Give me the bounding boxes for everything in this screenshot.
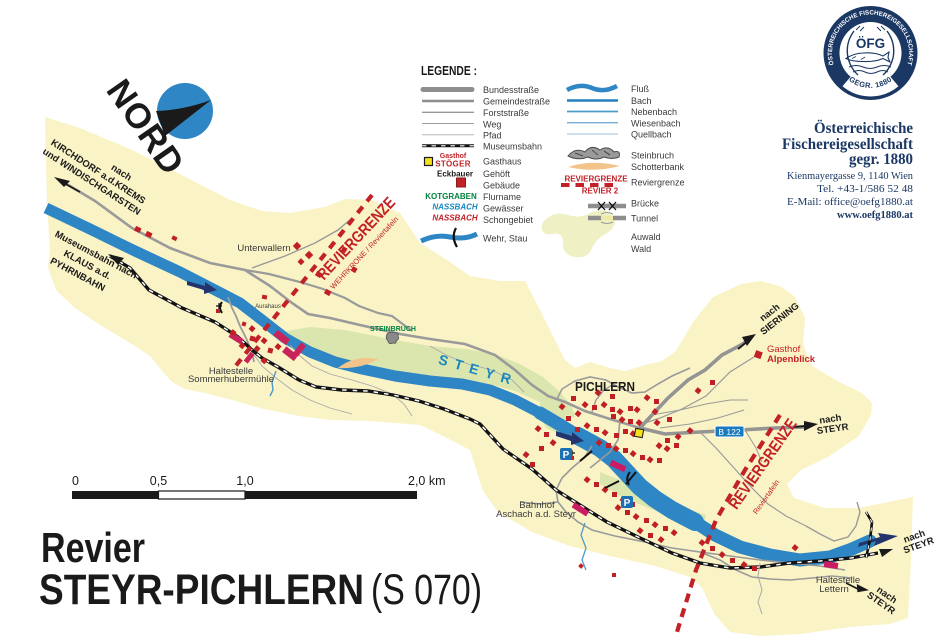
svg-text:STÖGER: STÖGER [435,160,471,169]
svg-text:KOTGRABEN: KOTGRABEN [425,192,477,201]
svg-text:E-Mail: office@oefg1880.at: E-Mail: office@oefg1880.at [787,196,913,208]
svg-text:Schongebiet: Schongebiet [483,215,534,225]
svg-text:Museumsbahn: Museumsbahn [483,142,542,152]
svg-text:Aschach a.d. Steyr: Aschach a.d. Steyr [496,509,576,520]
svg-text:Alpenblick: Alpenblick [767,354,816,365]
svg-text:(S 070): (S 070) [371,566,482,614]
svg-text:Reviergrenze: Reviergrenze [631,178,685,188]
svg-text:P: P [624,498,631,509]
svg-text:Lettern: Lettern [819,584,849,595]
svg-text:Unterwallern: Unterwallern [237,243,290,254]
svg-text:0,5: 0,5 [150,474,167,488]
svg-text:Wehr, Stau: Wehr, Stau [483,234,527,244]
svg-text:STEYR-PICHLERN: STEYR-PICHLERN [39,566,364,614]
svg-text:Tel. +43-1/586 52 48: Tel. +43-1/586 52 48 [817,183,914,195]
svg-text:Brücke: Brücke [631,199,659,209]
svg-text:Steinbruch: Steinbruch [631,151,674,161]
svg-text:Gehöft: Gehöft [483,169,511,179]
svg-text:Tunnel: Tunnel [631,214,658,224]
svg-text:Gasthaus: Gasthaus [483,157,522,167]
svg-text:B 122: B 122 [718,427,740,437]
svg-text:ÖFG: ÖFG [856,36,885,51]
svg-text:STEINBRUCH: STEINBRUCH [370,326,416,333]
svg-text:Gewässer: Gewässer [483,204,524,214]
svg-text:Fluß: Fluß [631,84,650,94]
svg-text:Revier: Revier [41,524,145,571]
svg-text:Wald: Wald [631,244,651,254]
svg-text:PICHLERN: PICHLERN [575,379,635,394]
svg-text:Eckbauer: Eckbauer [437,170,473,179]
svg-text:Österreichische: Österreichische [814,119,913,137]
svg-text:Gebäude: Gebäude [483,181,520,191]
svg-text:NASSBACH: NASSBACH [432,214,478,223]
svg-text:REVIERGRENZE: REVIERGRENZE [564,175,628,184]
svg-text:Kienmayergasse 9, 1140 Wien: Kienmayergasse 9, 1140 Wien [787,170,913,182]
svg-text:Bach: Bach [631,96,652,106]
svg-text:www.oefg1880.at: www.oefg1880.at [837,209,913,221]
svg-text:P: P [563,450,570,461]
svg-text:gegr. 1880: gegr. 1880 [849,151,913,168]
svg-text:Forststraße: Forststraße [483,108,529,118]
svg-text:Wiesenbach: Wiesenbach [631,118,681,128]
svg-text:REVIER 2: REVIER 2 [582,187,619,196]
svg-text:Auwald: Auwald [631,232,661,242]
svg-text:Gemeindestraße: Gemeindestraße [483,97,550,107]
svg-text:2,0 km: 2,0 km [408,474,446,488]
svg-text:NASSBACH: NASSBACH [432,203,478,212]
svg-text:Nebenbach: Nebenbach [631,107,677,117]
svg-text:Quellbach: Quellbach [631,130,672,140]
svg-text:LEGENDE :: LEGENDE : [421,63,477,78]
svg-text:Flurname: Flurname [483,192,521,202]
svg-text:Sommerhubermühle: Sommerhubermühle [188,374,274,385]
svg-text:Aurahaus: Aurahaus [255,304,281,310]
svg-text:Pfad: Pfad [483,131,502,141]
svg-text:Bundesstraße: Bundesstraße [483,85,539,95]
svg-text:1,0: 1,0 [236,474,253,488]
svg-text:Schotterbank: Schotterbank [631,162,685,172]
svg-text:Weg: Weg [483,119,501,129]
svg-text:0: 0 [72,474,79,488]
